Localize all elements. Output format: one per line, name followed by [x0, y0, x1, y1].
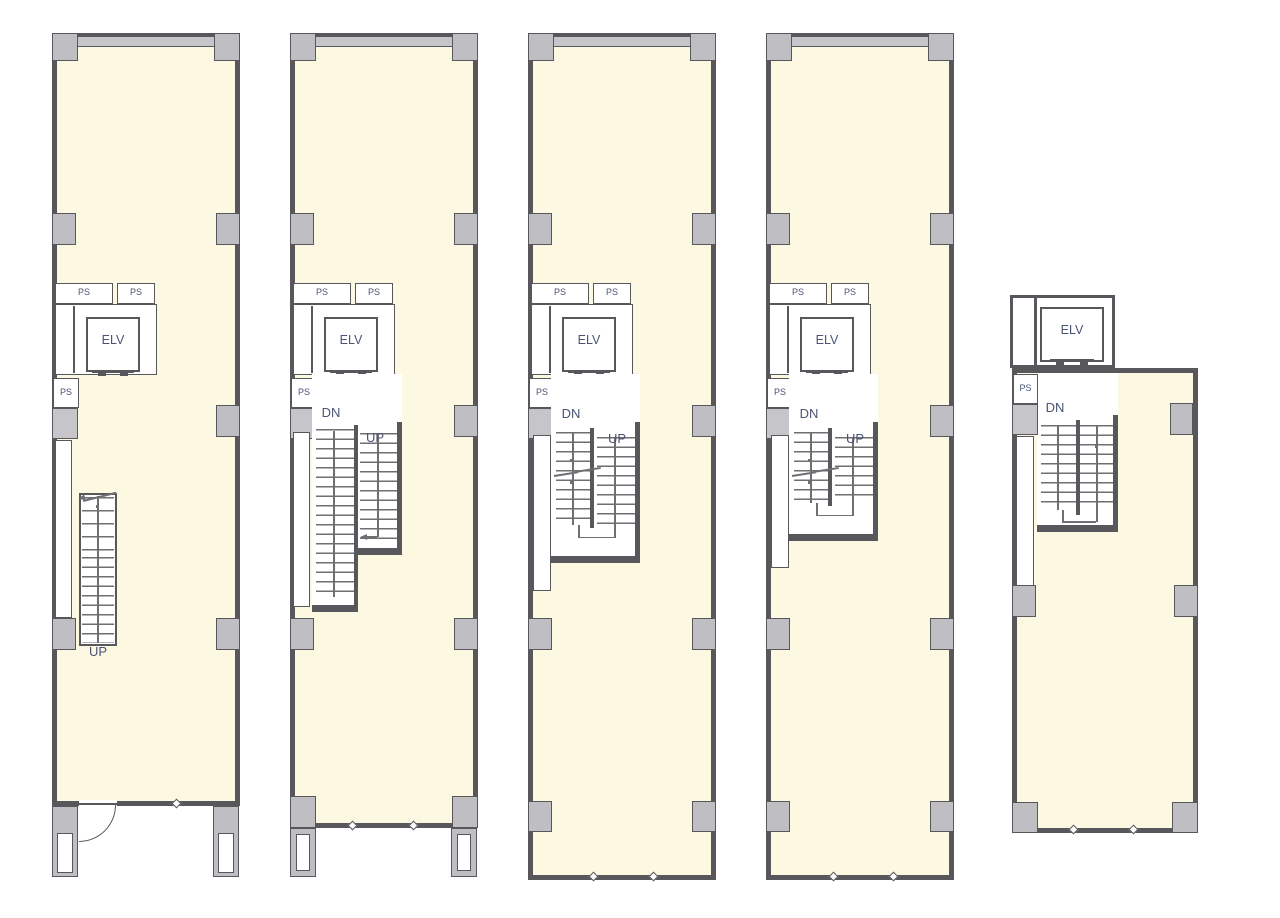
- stair-up-label: UP: [840, 432, 870, 446]
- pilotis-window: [218, 833, 234, 873]
- column: [528, 213, 552, 245]
- stair-treads: [316, 429, 354, 599]
- elevator-label: ELV: [802, 333, 852, 347]
- elevator-car: ELV: [86, 317, 140, 372]
- stair-wall: [590, 428, 594, 528]
- floor-plan-sheet: PS PS ELV PS UP: [0, 0, 1280, 918]
- elevator-label: ELV: [564, 333, 614, 347]
- column: [1172, 802, 1198, 833]
- elevator-car: ELV: [1040, 307, 1104, 362]
- window-niche: [293, 432, 310, 607]
- column: [692, 405, 716, 437]
- stair-wall: [397, 422, 402, 555]
- column: [766, 213, 790, 245]
- landing-rail: [578, 537, 616, 539]
- stair-rail: [572, 433, 574, 525]
- stair-wall: [354, 425, 358, 608]
- rail-post: [570, 459, 573, 462]
- column: [690, 33, 716, 61]
- column: [452, 796, 478, 828]
- stair-up-label: UP: [76, 645, 120, 659]
- elevator-label: ELV: [88, 333, 138, 347]
- rail-post: [570, 481, 573, 484]
- column: [214, 33, 240, 61]
- column: [766, 801, 790, 832]
- rail-post: [808, 481, 811, 484]
- rail-post: [808, 459, 811, 462]
- floor-plan-4: PS PS ELV PS DN UP: [766, 33, 954, 880]
- column: [290, 213, 314, 245]
- window-niche: [771, 435, 789, 568]
- stair-down-label: DN: [1040, 401, 1070, 415]
- pipe-shaft-box: PS: [1013, 374, 1038, 404]
- door-swing-arc: [79, 805, 116, 842]
- wall-pier: [1012, 404, 1038, 435]
- pipe-shaft-label: PS: [356, 284, 392, 301]
- pipe-shaft-label: PS: [1014, 375, 1037, 401]
- column: [52, 213, 76, 245]
- window-niche: [533, 435, 551, 591]
- pipe-shaft-label: PS: [294, 284, 350, 301]
- floor-plan-5: ELV PS DN: [1010, 295, 1198, 838]
- elevator-door-jamb: [120, 373, 128, 376]
- top-wall: [532, 37, 712, 47]
- pipe-shaft-box: PS: [293, 283, 351, 304]
- pipe-shaft-box: PS: [831, 283, 869, 304]
- elevator-car: ELV: [562, 317, 616, 372]
- shaft-divider-wall: [1034, 298, 1037, 365]
- top-wall: [294, 37, 474, 47]
- pilotis-window: [457, 834, 471, 871]
- shaft-divider-wall: [73, 306, 75, 373]
- landing-rail: [1062, 521, 1096, 523]
- pipe-shaft-box: PS: [53, 378, 79, 408]
- window-niche: [1016, 436, 1034, 588]
- pipe-shaft-box: PS: [531, 283, 589, 304]
- floor-plan-3: PS PS ELV PS DN UP: [528, 33, 716, 880]
- elevator-car: ELV: [800, 317, 854, 372]
- column: [930, 801, 954, 832]
- stair-down-label: DN: [316, 406, 346, 420]
- column: [528, 801, 552, 832]
- stair-down-label: DN: [794, 407, 824, 421]
- column: [454, 618, 478, 650]
- column: [454, 213, 478, 245]
- elevator-door-jamb: [98, 373, 106, 376]
- stair-rail: [810, 433, 812, 503]
- stair-wall: [635, 422, 640, 563]
- column: [692, 618, 716, 650]
- stair-rail: [97, 496, 99, 643]
- stair-wall: [789, 534, 878, 541]
- pipe-shaft-label: PS: [118, 284, 154, 301]
- shaft-divider-wall: [787, 306, 789, 373]
- stair-rail: [333, 431, 335, 597]
- landing-rail: [816, 515, 854, 517]
- column: [930, 213, 954, 245]
- pipe-shaft-label: PS: [770, 284, 826, 301]
- pipe-shaft-box: PS: [117, 283, 155, 304]
- pipe-shaft-label: PS: [832, 284, 868, 301]
- elevator-door-jamb: [1056, 362, 1064, 365]
- stair-wall: [873, 422, 878, 541]
- stair-rail: [377, 433, 379, 537]
- stair-up-label: UP: [360, 431, 390, 445]
- stair-wall: [312, 605, 358, 612]
- column: [452, 33, 478, 61]
- pilotis-window: [57, 833, 73, 873]
- pipe-shaft-box: PS: [355, 283, 393, 304]
- floor-plan-1: PS PS ELV PS UP: [52, 33, 240, 878]
- column: [216, 618, 240, 650]
- pipe-shaft-box: PS: [769, 283, 827, 304]
- arrow-head: [360, 534, 367, 540]
- stair-wall: [1113, 415, 1118, 532]
- column: [1174, 585, 1198, 617]
- shaft-divider-wall: [311, 306, 313, 373]
- column: [1012, 585, 1036, 617]
- stair-rail: [1096, 425, 1098, 522]
- column: [928, 33, 954, 61]
- floor-outline: [52, 33, 240, 806]
- pipe-shaft-label: PS: [594, 284, 630, 301]
- stair-down-label: DN: [556, 407, 586, 421]
- column: [692, 801, 716, 832]
- stair-wall: [551, 556, 640, 563]
- column: [52, 618, 76, 650]
- stair-rail: [852, 437, 854, 516]
- column: [766, 33, 792, 61]
- column: [528, 33, 554, 61]
- stair-up-label: UP: [602, 432, 632, 446]
- stair-rail: [1057, 426, 1059, 510]
- pipe-shaft-label: PS: [54, 379, 78, 405]
- floor-plan-2: PS PS ELV PS DN UP: [290, 33, 478, 878]
- pilotis-window: [296, 834, 310, 871]
- column: [528, 618, 552, 650]
- wall-pier: [52, 408, 78, 439]
- elevator-label: ELV: [1042, 323, 1102, 337]
- column: [1012, 802, 1038, 833]
- column: [52, 33, 78, 61]
- stair-treads: [597, 437, 635, 525]
- pipe-shaft-label: PS: [532, 284, 588, 301]
- elevator-door-jamb: [1080, 362, 1088, 365]
- column: [290, 796, 316, 828]
- column: [290, 33, 316, 61]
- column: [290, 618, 314, 650]
- rail-post: [1095, 445, 1098, 448]
- elevator-label: ELV: [326, 333, 376, 347]
- column: [454, 405, 478, 437]
- pipe-shaft-label: PS: [56, 284, 112, 301]
- shaft-divider-wall: [549, 306, 551, 373]
- stair-treads: [835, 437, 873, 503]
- window-niche: [55, 440, 72, 618]
- column: [216, 213, 240, 245]
- stair-wall: [354, 548, 402, 555]
- column: [216, 405, 240, 437]
- stair-wall: [1037, 525, 1118, 532]
- pipe-shaft-box: PS: [55, 283, 113, 304]
- pipe-shaft-box: PS: [593, 283, 631, 304]
- column: [930, 405, 954, 437]
- top-wall: [56, 37, 236, 47]
- column: [930, 618, 954, 650]
- column: [766, 618, 790, 650]
- column: [1170, 403, 1193, 435]
- elevator-car: ELV: [324, 317, 378, 372]
- rail-post: [96, 505, 99, 508]
- stair-rail: [614, 437, 616, 538]
- top-wall: [770, 37, 950, 47]
- column: [692, 213, 716, 245]
